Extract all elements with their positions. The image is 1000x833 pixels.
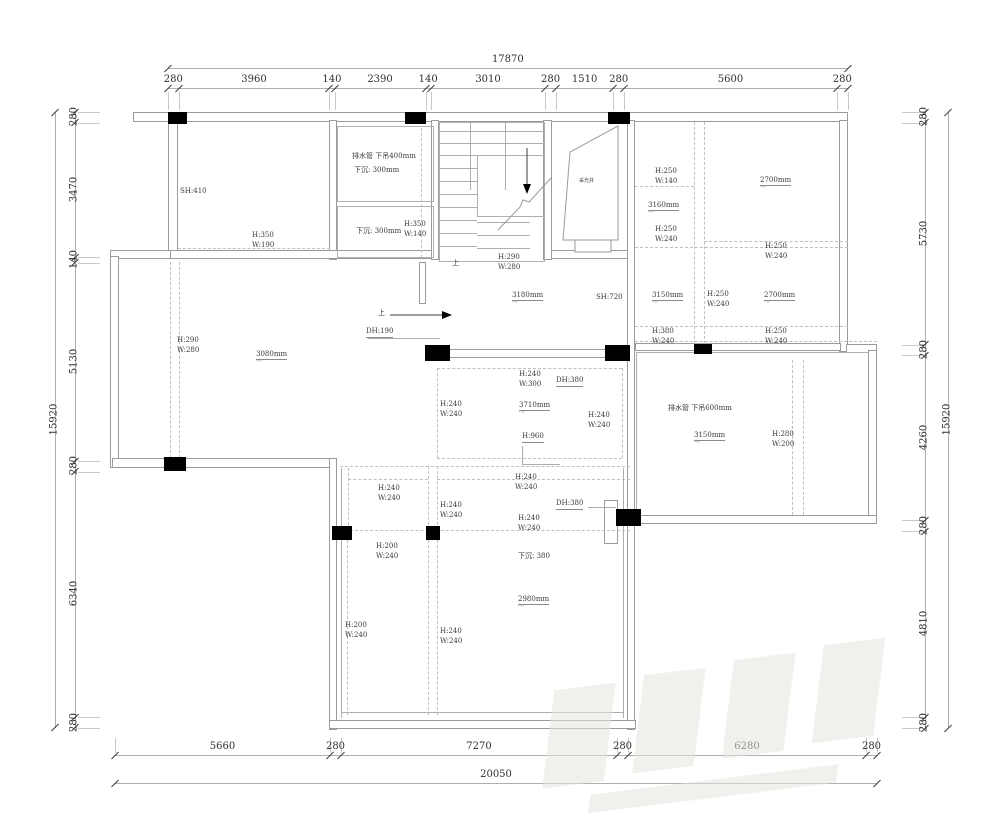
dim-label: 5660 [201,741,245,752]
label-ceiling-level: 3160mm〜 [648,200,679,215]
label-light-well: 采光井 [579,178,594,185]
dim-extension [78,123,100,124]
dim-extension [335,92,336,110]
dim-label: 6280 [725,741,769,752]
dashed-line [437,535,438,715]
dashed-line [179,262,180,458]
dim-label: 280 [314,741,358,752]
dim-extension [78,717,100,718]
label-window: H:240 W:240 [588,410,610,430]
label-stair-up: 上 [452,258,459,268]
dim-extension [168,92,169,110]
dim-extension [624,92,625,110]
stair-tread [439,220,477,221]
wall-spine [627,120,635,730]
inner-line [636,352,637,515]
column [425,345,450,361]
level-symbol-icon: 〜 [694,441,725,445]
stair-tread [439,233,477,234]
label-door-height: DH:380 [556,375,583,387]
level-symbol-icon: 〜 [512,301,543,305]
dashed-line [170,262,171,458]
label-window: H:240 W:300 [519,369,541,389]
stair-line [470,122,471,190]
stair-line [439,131,545,132]
dim-label: 280 [919,95,930,139]
dim-label: 280 [820,74,864,85]
level-symbol-icon: 〜 [518,605,549,609]
stair-tread [439,181,477,182]
dim-extension [78,257,100,258]
dim-extension [431,92,432,110]
dashed-line [348,479,428,480]
label-ceiling-level: 3180mm〜 [512,290,543,305]
dim-label: 3010 [466,74,510,85]
label-window: H:290 W:280 [498,252,520,272]
dashed-line [635,247,848,248]
dim-line [115,783,877,784]
column [426,526,440,540]
label-door-height: DH:190 [366,326,393,338]
dim-label: 280 [69,700,80,744]
stair-tread [439,168,477,169]
light-well [556,122,622,258]
wall-sep-topleft [329,120,337,260]
dim-label: 280 [919,328,930,372]
column [694,344,712,354]
dim-extension [613,92,614,110]
dashed-line [704,122,705,344]
dim-extension [78,263,100,264]
dim-label: 6340 [69,572,80,616]
dim-label: 2390 [358,74,402,85]
dashed-line [437,466,438,535]
label-window: H:240 W:240 [518,513,540,533]
watermark [555,650,925,810]
wall-right-lower [868,350,877,524]
label-window: H:240 W:240 [440,500,462,520]
dashed-line [428,466,429,535]
dashed-line [428,535,429,715]
level-symbol-icon: 〜 [652,301,683,305]
dashed-line [340,466,630,467]
dim-label: 280 [151,74,195,85]
dim-label: 5730 [919,211,930,255]
label-height: H:960 [522,431,544,443]
label-door-height: DH:380 [556,498,583,510]
dim-label: 5600 [709,74,753,85]
column [608,112,630,124]
label-window: H:200 W:240 [345,620,367,640]
wall-left-upper [168,120,178,258]
dim-extension [837,92,838,110]
label-window: H:280 W:200 [772,429,794,449]
level-symbol-icon: 〜 [648,211,679,215]
label-drain-pipe: 排水管 下吊600mm [668,403,732,413]
stair-tread [477,248,530,249]
stair-tread [439,246,477,247]
dashed-line [340,530,630,531]
column [168,112,187,124]
label-window: H:240 W:240 [440,399,462,419]
label-ceiling-level: 3150mm〜 [694,430,725,445]
dim-extension [78,461,100,462]
dim-extension [115,738,116,753]
label-sunken: 下沉: 380 [518,551,550,561]
dim-label: 280 [69,444,80,488]
label-ceiling-level: 2700mm〜 [760,175,791,190]
dim-label: 20050 [474,769,518,780]
label-drain-pipe: 排水管 下吊400mm [352,151,416,161]
dim-extension [329,92,330,110]
dim-extension [179,92,180,110]
dim-label: 280 [919,503,930,547]
wall-left-jut [110,250,174,259]
dashed-line [622,368,623,458]
label-window: H:250 W:240 [765,326,787,346]
dim-label: 280 [919,700,930,744]
leader-line [588,507,616,508]
column [332,526,352,540]
dim-line [115,755,877,756]
label-window: H:250 W:140 [655,166,677,186]
label-window: H:290 W:280 [177,335,199,355]
dim-label: 140 [69,237,80,281]
stair-line [439,143,545,144]
label-window: H:380 W:240 [652,326,674,346]
dim-extension [426,92,427,110]
column [616,509,641,526]
dim-label: 4260 [919,415,930,459]
column [164,457,186,471]
sunken-box-1 [337,126,434,202]
dim-extension [78,112,100,113]
dim-label: 140 [406,74,450,85]
label-window: H:240 W:240 [440,626,462,646]
dim-line [168,68,848,69]
dim-label: 140 [310,74,354,85]
label-window: H:250 W:240 [655,224,677,244]
wall-stub-a [419,262,426,304]
label-sill-height: SH:410 [180,186,207,196]
label-ceiling-level: 3710mm〜 [519,400,550,415]
wall-center-bottom [448,349,610,358]
dashed-line [694,122,695,344]
label-sunken: 下沉: 300mm [354,165,399,175]
leader-line [522,446,523,464]
dim-extension [848,92,849,110]
dim-extension [556,92,557,110]
level-symbol-icon: 〜 [519,411,550,415]
dim-tick [51,724,59,732]
dim-label: 3470 [69,167,80,211]
wall-left-mid [110,256,119,468]
dim-label: 3960 [232,74,276,85]
stair-tread [439,194,477,195]
floor-plan: SH:410 H:350 W:190 排水管 下吊400mm 下沉: 300mm… [0,0,1000,833]
label-window: H:240 W:240 [515,472,537,492]
wall-right-upper [839,120,848,352]
dim-label: 280 [850,741,894,752]
stair-tread [439,207,477,208]
inner-line [636,352,869,353]
label-sunken: 下沉: 300mm [356,226,401,236]
level-symbol-icon: 〜 [256,360,287,364]
wall-bottomroom-left [329,458,337,730]
label-sill-height: SH:720 [596,292,623,302]
label-window: H:350 W:190 [252,230,274,250]
inner-line [623,468,624,718]
dim-label: 5130 [69,339,80,383]
stair-tread [477,235,530,236]
label-ceiling-level: 2980mm〜 [518,594,549,609]
dim-extension [78,728,100,729]
label-window: H:350 W:140 [404,219,426,239]
label-up: 上 [378,308,385,318]
label-ceiling-level: 3150mm〜 [652,290,683,305]
leader-line [368,338,440,339]
column [405,112,426,124]
label-window: H:250 W:240 [765,241,787,261]
dashed-line [437,458,622,459]
dashed-line [437,368,438,458]
dashed-line [348,468,349,535]
up-arrow-icon [390,308,452,322]
label-ceiling-level: 3080mm〜 [256,349,287,364]
dim-label: 15920 [49,397,60,441]
wall-midleft-bottom [112,458,336,468]
inner-line [341,712,624,713]
dim-line [168,88,848,89]
dim-extension [78,472,100,473]
stair-tread [439,155,477,156]
dashed-line [803,360,804,515]
wall-top [133,112,848,122]
label-window: H:240 W:240 [378,483,400,503]
level-symbol-icon: 〜 [760,186,791,190]
dim-label: 15920 [942,398,953,442]
wall-rightroom-bottom [627,515,877,524]
label-window: H:200 W:240 [376,541,398,561]
dim-label: 17870 [486,54,530,65]
dim-extension [545,92,546,110]
dim-label: 280 [597,74,641,85]
label-ceiling-level: 2700mm〜 [764,290,795,305]
dim-label: 280 [601,741,645,752]
leader-line [522,464,560,465]
dim-label: 7270 [457,741,501,752]
stair-break-line [495,172,555,234]
dim-label: 280 [69,95,80,139]
column [605,345,630,361]
dim-label: 4810 [919,602,930,646]
label-window: H:250 W:240 [707,289,729,309]
level-symbol-icon: 〜 [764,301,795,305]
wall-bottom [329,720,636,729]
inner-line [341,468,342,718]
